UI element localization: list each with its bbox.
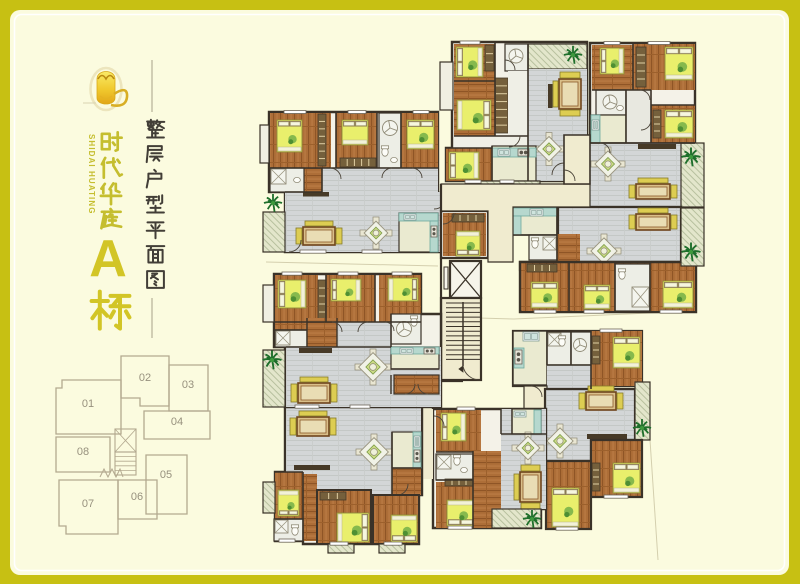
svg-text:03: 03 (182, 379, 194, 391)
svg-text:SHIDAI HUATING: SHIDAI HUATING (87, 134, 96, 215)
svg-text:08: 08 (77, 446, 89, 458)
svg-text:01: 01 (82, 398, 94, 410)
svg-text:04: 04 (171, 416, 183, 428)
svg-text:A: A (89, 230, 127, 288)
svg-text:02: 02 (139, 372, 151, 384)
svg-text:06: 06 (131, 491, 143, 503)
svg-text:05: 05 (160, 469, 172, 481)
svg-text:07: 07 (82, 498, 94, 510)
